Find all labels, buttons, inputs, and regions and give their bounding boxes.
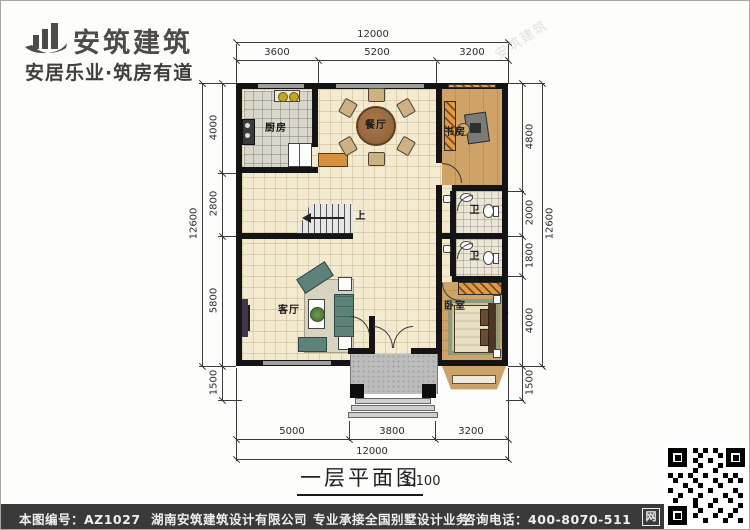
dim-right-1: 4800 xyxy=(525,111,536,163)
stairs-arrow-line xyxy=(310,217,344,219)
bay-window xyxy=(442,366,506,392)
dim-right-total: 12600 xyxy=(545,198,556,250)
dim-bottom-1: 5000 xyxy=(266,426,318,437)
dim-right-3: 1800 xyxy=(525,230,536,282)
dim-right-4: 4000 xyxy=(525,295,536,347)
dim-ext xyxy=(435,421,436,441)
dim-bottom-2: 3800 xyxy=(366,426,418,437)
tv-screen xyxy=(248,305,250,331)
qr-finder xyxy=(668,506,687,525)
phone-text: 咨询电话：400-8070-511 xyxy=(463,509,631,528)
dim-line xyxy=(236,459,508,460)
dim-line xyxy=(236,60,508,61)
dim-ext xyxy=(318,62,319,83)
dim-line xyxy=(202,83,203,366)
dim-left-1: 4000 xyxy=(209,102,220,154)
bookshelf xyxy=(444,101,456,151)
dim-bottom-3: 3200 xyxy=(445,426,497,437)
dim-line xyxy=(236,439,508,440)
dim-ext xyxy=(199,366,236,367)
porch-column xyxy=(350,384,364,398)
drawing-page: 安筑建筑 安居乐业·筑房有道 安筑建筑 安筑建筑 安筑建筑 安筑建筑 安筑建筑 … xyxy=(0,0,750,530)
brand-tagline: 安居乐业·筑房有道 xyxy=(25,58,193,85)
window xyxy=(263,361,331,365)
porch xyxy=(348,346,438,421)
computer xyxy=(470,123,481,133)
fridge-divider xyxy=(299,144,300,166)
dim-ext xyxy=(506,400,524,401)
toilet-tank xyxy=(493,253,499,264)
dim-left-2: 2800 xyxy=(209,178,220,230)
dim-left-total: 12600 xyxy=(189,198,200,250)
dim-line xyxy=(236,42,508,43)
service-text: 专业承接全国别墅设计业务 xyxy=(313,509,469,528)
dim-ext xyxy=(199,83,236,84)
porch-step xyxy=(355,398,431,404)
brand-name: 安筑建筑 xyxy=(73,21,193,60)
stairs-arrow-head xyxy=(302,213,311,223)
pillow xyxy=(480,309,489,326)
wardrobe xyxy=(458,282,502,295)
kitchen-wall-bottom xyxy=(236,167,318,173)
stove-burner xyxy=(245,133,250,138)
dim-ext xyxy=(508,236,524,237)
room-label-study: 书房 xyxy=(440,127,470,139)
dim-top-3: 3200 xyxy=(446,47,498,58)
web-badge: 网 xyxy=(642,508,660,526)
nightstand xyxy=(493,349,501,358)
qr-finder xyxy=(668,448,687,467)
plan-scale: 1:100 xyxy=(403,474,440,489)
dim-ext xyxy=(218,173,236,174)
armchair xyxy=(338,277,352,291)
dim-bottom-total: 12000 xyxy=(346,446,398,457)
sink-bowl xyxy=(289,92,299,102)
dim-ext xyxy=(508,366,545,367)
corridor-sink xyxy=(443,195,451,203)
drawing-code: 本图编号：AZ1027 xyxy=(19,509,141,528)
fridge xyxy=(288,143,312,167)
company-name: 湖南安筑建筑设计有限公司 xyxy=(151,509,307,528)
bay-window-sill xyxy=(452,375,496,384)
kitchen-counter xyxy=(318,153,348,167)
pillow xyxy=(480,329,489,346)
dim-left-3: 5800 xyxy=(209,275,220,327)
dim-ext xyxy=(218,236,236,237)
qr-finder xyxy=(726,448,745,467)
qr-code-icon xyxy=(664,444,749,529)
sofa-small xyxy=(298,337,327,352)
porch-step xyxy=(351,405,435,411)
dim-line xyxy=(542,83,543,366)
wall-right xyxy=(502,83,508,366)
stove-burner xyxy=(245,123,250,128)
stairs-up-label: 上 xyxy=(354,211,368,223)
corridor-sink xyxy=(443,245,451,253)
wall-dining-study xyxy=(436,83,442,163)
toilet-tank xyxy=(493,206,499,217)
dim-line xyxy=(522,83,523,400)
watermark: 安筑建筑 xyxy=(491,14,552,63)
nightstand xyxy=(493,295,501,304)
room-label-dining: 餐厅 xyxy=(363,120,389,132)
building-logo-icon xyxy=(23,21,69,55)
dim-ext xyxy=(349,421,350,441)
dim-ext xyxy=(236,44,237,83)
dining-chair xyxy=(368,88,385,102)
porch-step xyxy=(348,412,438,418)
dim-ext xyxy=(218,400,242,401)
dim-right-5: 1500 xyxy=(525,357,536,409)
window xyxy=(258,84,304,88)
dim-top-2: 5200 xyxy=(351,47,403,58)
porch-column xyxy=(422,384,436,398)
dim-top-1: 3600 xyxy=(251,47,303,58)
dining-chair xyxy=(368,152,385,166)
plant xyxy=(310,307,325,322)
kitchen-wall-right xyxy=(312,83,318,147)
headboard xyxy=(488,303,496,353)
dim-ext xyxy=(436,62,437,83)
footer-bar: 本图编号：AZ1027 湖南安筑建筑设计有限公司 专业承接全国别墅设计业务 咨询… xyxy=(1,504,750,530)
dim-top-total: 12000 xyxy=(347,29,399,40)
dim-ext xyxy=(508,44,509,83)
dim-ext xyxy=(508,368,509,461)
dim-ext xyxy=(508,83,545,84)
dim-ext xyxy=(508,276,524,277)
room-label-bedroom: 卧室 xyxy=(440,301,470,313)
dim-line xyxy=(222,83,223,400)
room-label-kitchen: 厨房 xyxy=(260,123,292,135)
floor-plan: 厨房 餐厅 书房 卫 卫 xyxy=(236,83,508,366)
cabinet xyxy=(448,84,496,88)
dim-ext xyxy=(508,191,524,192)
sink-bowl xyxy=(278,92,288,102)
room-label-living: 客厅 xyxy=(274,305,304,317)
dim-ext xyxy=(236,368,237,461)
